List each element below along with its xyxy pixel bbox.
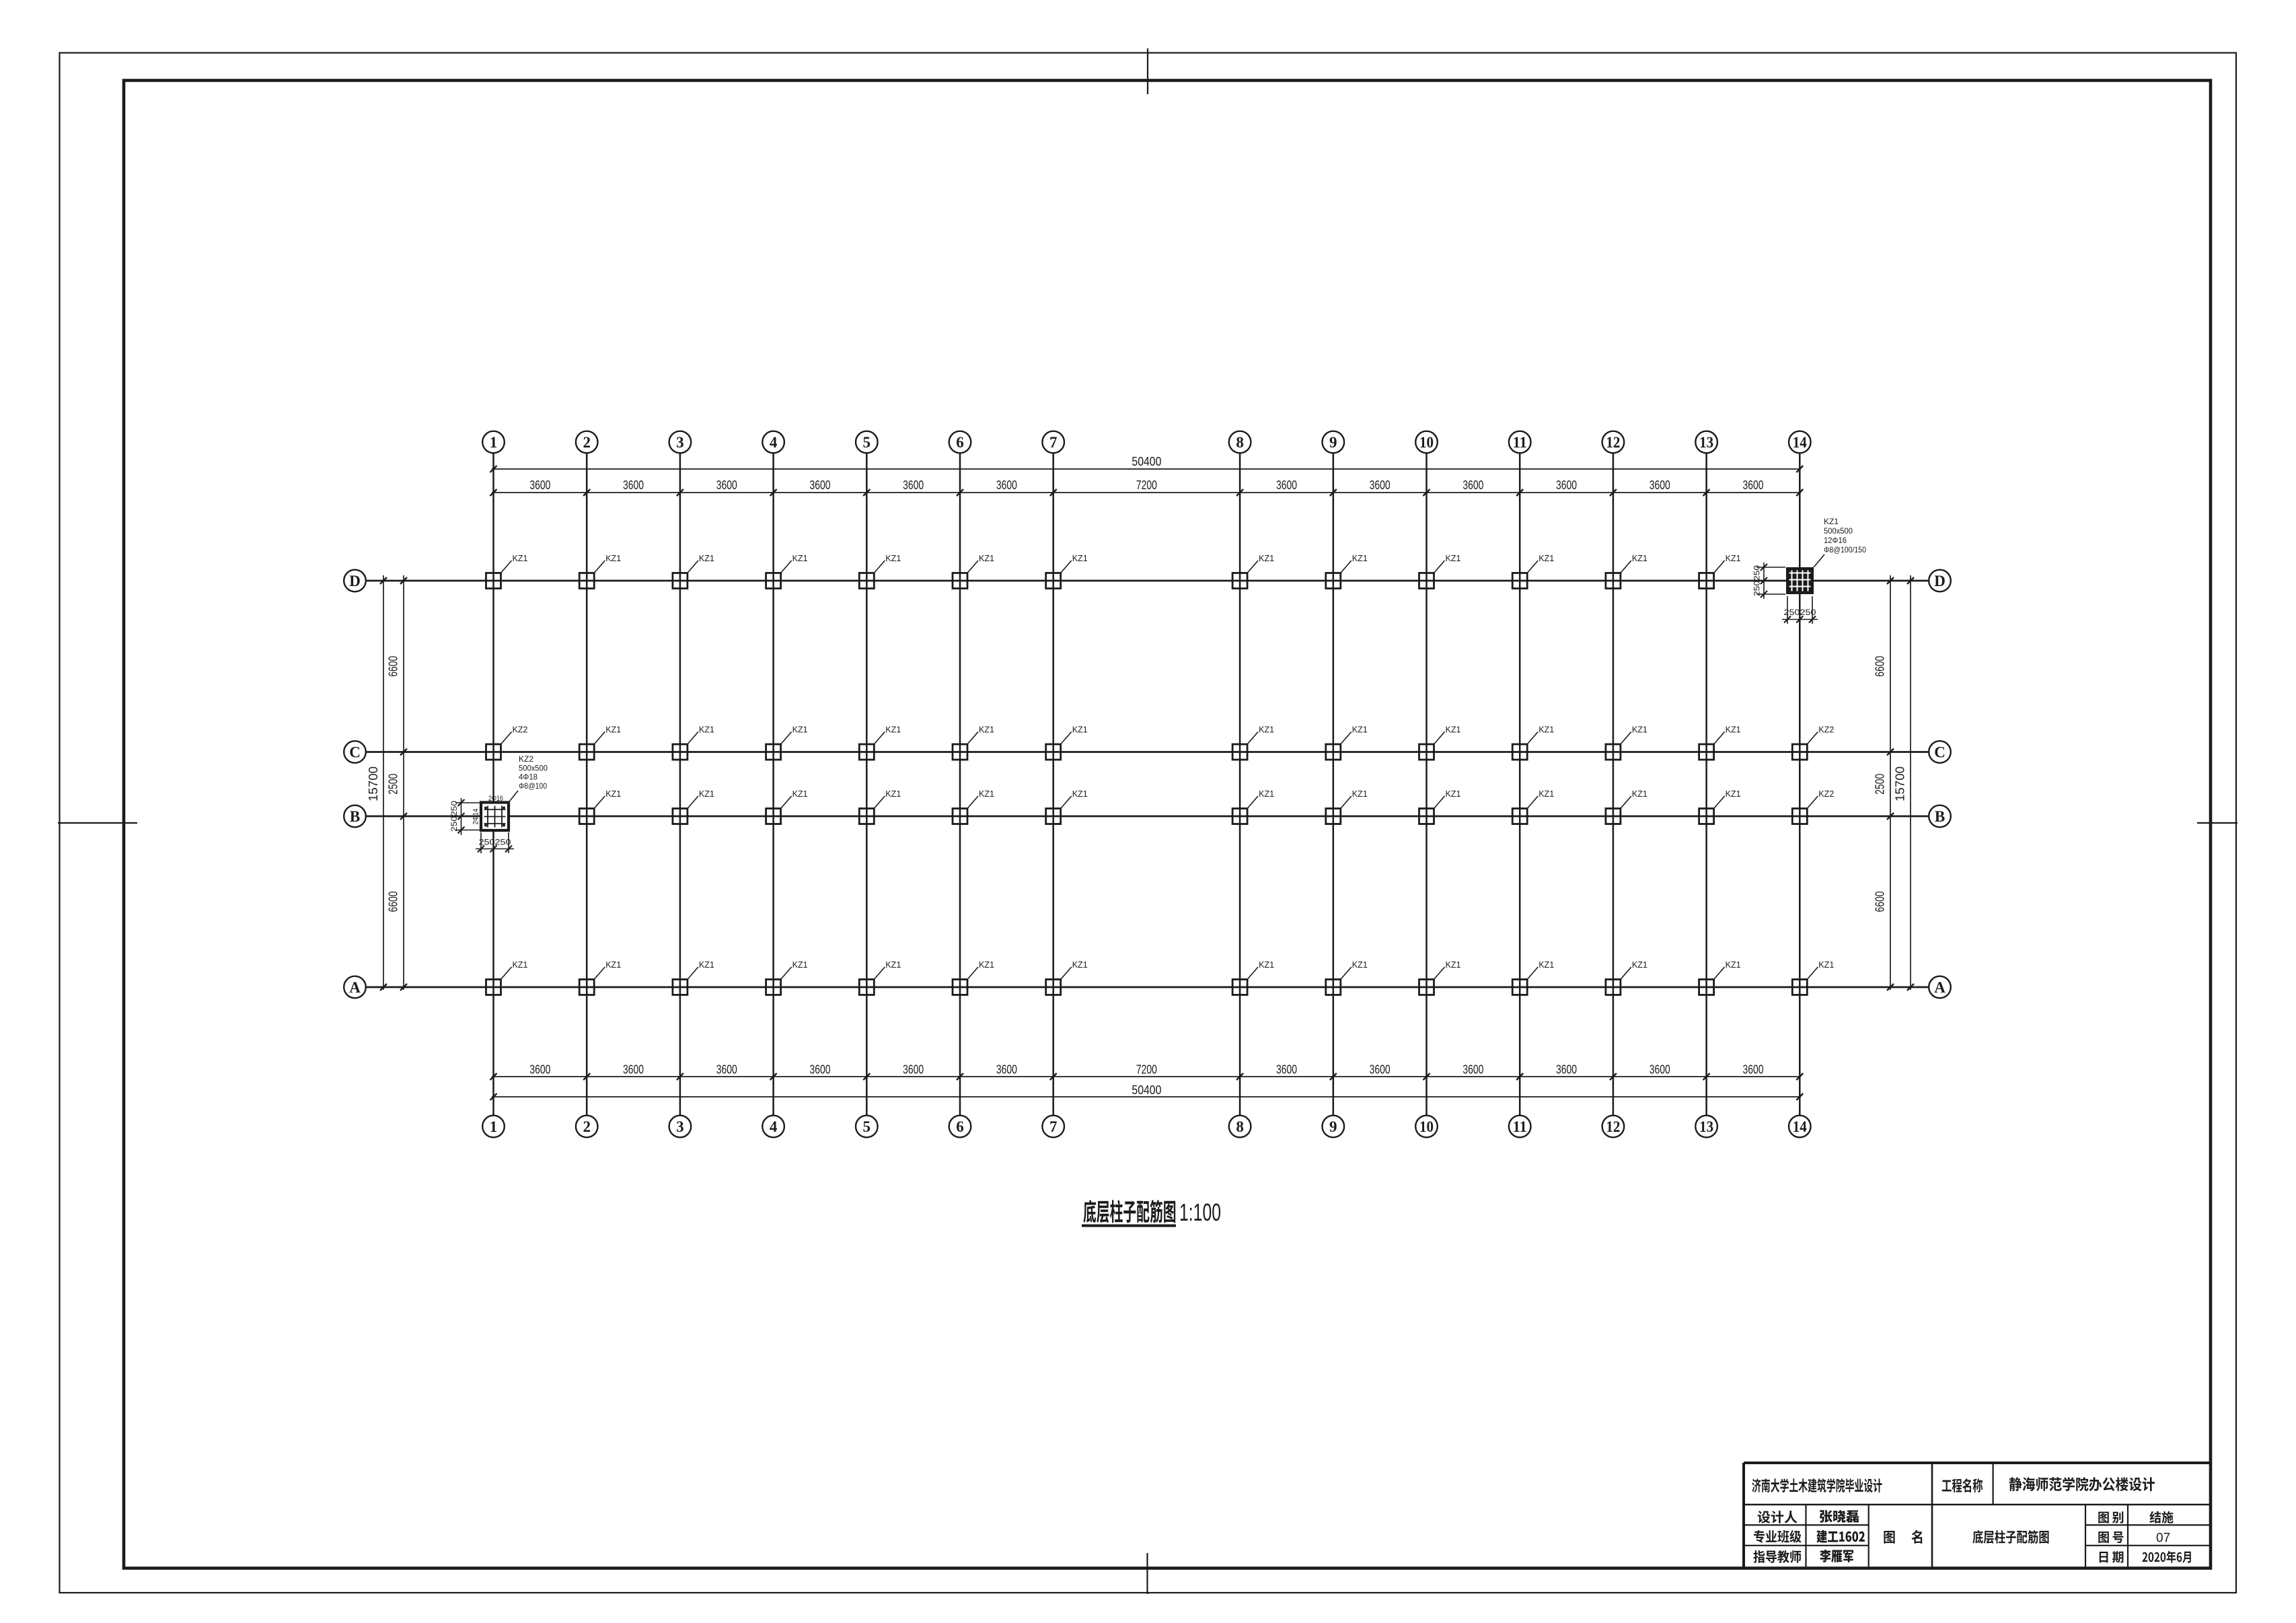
svg-text:KZ1: KZ1: [1352, 725, 1368, 735]
svg-text:250250: 250250: [449, 801, 459, 832]
svg-text:3600: 3600: [1650, 1063, 1670, 1077]
svg-text:KZ1: KZ1: [1072, 553, 1088, 563]
svg-text:KZ1: KZ1: [979, 960, 994, 970]
svg-text:50400: 50400: [1132, 1083, 1161, 1097]
svg-text:KZ1: KZ1: [1446, 553, 1461, 563]
svg-text:KZ1: KZ1: [1259, 553, 1274, 563]
svg-text:6600: 6600: [1874, 892, 1887, 912]
svg-text:3600: 3600: [1370, 1063, 1391, 1077]
svg-text:KZ1: KZ1: [979, 725, 994, 735]
svg-text:KZ1: KZ1: [605, 725, 621, 735]
svg-text:3600: 3600: [1742, 478, 1763, 492]
svg-text:3600: 3600: [529, 478, 550, 492]
svg-text:KZ1: KZ1: [1726, 960, 1741, 970]
svg-text:KZ1: KZ1: [1259, 960, 1274, 970]
svg-text:KZ1: KZ1: [1539, 553, 1554, 563]
svg-text:B: B: [350, 808, 360, 825]
svg-text:KZ1: KZ1: [979, 789, 994, 799]
svg-text:12Φ16: 12Φ16: [1824, 536, 1847, 545]
svg-text:KZ1: KZ1: [1352, 789, 1368, 799]
svg-text:D: D: [349, 573, 361, 589]
svg-text:7: 7: [1049, 1118, 1058, 1135]
svg-text:2: 2: [583, 1118, 591, 1135]
svg-text:7200: 7200: [1136, 1063, 1157, 1077]
svg-text:KZ2: KZ2: [513, 725, 528, 735]
svg-text:3600: 3600: [903, 478, 924, 492]
svg-text:KZ1: KZ1: [1539, 725, 1554, 735]
svg-text:3600: 3600: [1370, 478, 1391, 492]
svg-text:10: 10: [1419, 1118, 1434, 1135]
svg-text:KZ1: KZ1: [792, 789, 808, 799]
svg-text:A: A: [349, 979, 361, 996]
svg-text:15700: 15700: [1894, 766, 1907, 801]
svg-text:3600: 3600: [996, 478, 1017, 492]
svg-text:KZ1: KZ1: [513, 960, 528, 970]
svg-text:2Φ14: 2Φ14: [472, 809, 480, 825]
svg-text:KZ2: KZ2: [519, 754, 533, 764]
svg-text:9: 9: [1329, 1118, 1337, 1135]
svg-text:KZ1: KZ1: [1632, 960, 1647, 970]
svg-text:3600: 3600: [1556, 478, 1577, 492]
svg-text:KZ1: KZ1: [699, 789, 714, 799]
svg-text:500x500: 500x500: [1824, 526, 1853, 536]
svg-text:250250: 250250: [1752, 565, 1762, 596]
svg-text:8: 8: [1236, 1118, 1244, 1135]
svg-text:KZ1: KZ1: [1259, 789, 1274, 799]
svg-text:KZ1: KZ1: [1072, 960, 1088, 970]
svg-text:KZ1: KZ1: [1259, 725, 1274, 735]
svg-text:KZ1: KZ1: [1446, 725, 1461, 735]
svg-text:KZ1: KZ1: [1539, 789, 1554, 799]
svg-text:KZ1: KZ1: [513, 553, 528, 563]
svg-text:KZ1: KZ1: [1818, 960, 1834, 970]
svg-text:KZ2: KZ2: [1818, 789, 1834, 799]
svg-text:3600: 3600: [623, 478, 644, 492]
svg-text:3600: 3600: [996, 1063, 1017, 1077]
svg-text:KZ1: KZ1: [1072, 725, 1088, 735]
svg-text:KZ1: KZ1: [605, 789, 621, 799]
svg-text:KZ1: KZ1: [1824, 517, 1839, 526]
svg-text:12: 12: [1606, 434, 1620, 451]
svg-text:2Φ16: 2Φ16: [488, 795, 503, 803]
svg-text:3600: 3600: [809, 478, 830, 492]
svg-text:D: D: [1934, 573, 1946, 589]
svg-text:6: 6: [956, 434, 964, 451]
svg-text:3600: 3600: [1556, 1063, 1577, 1077]
svg-text:KZ1: KZ1: [792, 725, 808, 735]
svg-text:10: 10: [1419, 434, 1434, 451]
svg-text:7200: 7200: [1136, 478, 1157, 492]
svg-text:KZ1: KZ1: [979, 553, 994, 563]
svg-text:3600: 3600: [1462, 478, 1483, 492]
svg-text:6600: 6600: [387, 892, 400, 912]
svg-text:KZ1: KZ1: [885, 960, 901, 970]
svg-text:6: 6: [956, 1118, 964, 1135]
svg-text:KZ1: KZ1: [1632, 725, 1647, 735]
svg-text:250250: 250250: [479, 838, 511, 847]
svg-text:3600: 3600: [1650, 478, 1670, 492]
svg-text:3: 3: [676, 434, 684, 451]
svg-text:1: 1: [490, 434, 498, 451]
svg-text:14: 14: [1793, 1118, 1807, 1135]
svg-text:50400: 50400: [1132, 455, 1161, 468]
svg-text:13: 13: [1699, 1118, 1713, 1135]
svg-text:2500: 2500: [387, 774, 400, 795]
svg-text:KZ2: KZ2: [1818, 725, 1834, 735]
svg-text:B: B: [1935, 808, 1945, 825]
svg-text:5: 5: [863, 434, 871, 451]
svg-text:3600: 3600: [716, 1063, 737, 1077]
svg-text:KZ1: KZ1: [699, 960, 714, 970]
svg-text:4: 4: [770, 1118, 778, 1135]
svg-text:1:100: 1:100: [1179, 1198, 1221, 1226]
svg-text:500x500: 500x500: [519, 763, 548, 772]
svg-text:KZ1: KZ1: [699, 725, 714, 735]
svg-text:KZ1: KZ1: [885, 553, 901, 563]
svg-text:4Φ18: 4Φ18: [519, 772, 538, 782]
svg-text:6600: 6600: [1874, 656, 1887, 677]
svg-text:07: 07: [2156, 1531, 2170, 1546]
svg-text:2500: 2500: [1874, 774, 1887, 795]
svg-text:7: 7: [1049, 434, 1058, 451]
svg-text:9: 9: [1329, 434, 1337, 451]
svg-text:250250: 250250: [1784, 608, 1816, 617]
svg-text:15700: 15700: [367, 766, 380, 801]
svg-text:Φ8@100/150: Φ8@100/150: [1824, 545, 1866, 554]
svg-text:13: 13: [1699, 434, 1713, 451]
svg-text:3600: 3600: [1742, 1063, 1763, 1077]
svg-text:C: C: [349, 744, 361, 761]
svg-text:3: 3: [676, 1118, 684, 1135]
svg-text:3600: 3600: [809, 1063, 830, 1077]
svg-text:3600: 3600: [1276, 478, 1297, 492]
svg-text:11: 11: [1513, 434, 1527, 451]
svg-text:2: 2: [583, 434, 591, 451]
svg-text:11: 11: [1513, 1118, 1527, 1135]
svg-text:KZ1: KZ1: [1446, 789, 1461, 799]
svg-text:KZ1: KZ1: [1072, 789, 1088, 799]
svg-text:Φ8@100: Φ8@100: [519, 781, 547, 791]
svg-text:3600: 3600: [1276, 1063, 1297, 1077]
svg-text:KZ1: KZ1: [1632, 553, 1647, 563]
svg-text:4: 4: [770, 434, 778, 451]
svg-text:3600: 3600: [903, 1063, 924, 1077]
svg-text:KZ1: KZ1: [885, 725, 901, 735]
svg-text:3600: 3600: [1462, 1063, 1483, 1077]
svg-text:6600: 6600: [387, 656, 400, 677]
svg-text:KZ1: KZ1: [699, 553, 714, 563]
svg-text:KZ1: KZ1: [1446, 960, 1461, 970]
svg-text:KZ1: KZ1: [1726, 725, 1741, 735]
svg-text:KZ1: KZ1: [792, 553, 808, 563]
svg-text:KZ1: KZ1: [1726, 553, 1741, 563]
svg-text:14: 14: [1793, 434, 1807, 451]
svg-text:KZ1: KZ1: [605, 553, 621, 563]
svg-text:5: 5: [863, 1118, 871, 1135]
svg-text:KZ1: KZ1: [1352, 553, 1368, 563]
svg-text:3600: 3600: [716, 478, 737, 492]
svg-text:1: 1: [490, 1118, 498, 1135]
svg-text:KZ1: KZ1: [792, 960, 808, 970]
svg-text:KZ1: KZ1: [1539, 960, 1554, 970]
svg-text:C: C: [1934, 744, 1946, 761]
svg-text:3600: 3600: [529, 1063, 550, 1077]
svg-text:12: 12: [1606, 1118, 1620, 1135]
svg-text:KZ1: KZ1: [1632, 789, 1647, 799]
svg-text:KZ1: KZ1: [1726, 789, 1741, 799]
svg-text:KZ1: KZ1: [1352, 960, 1368, 970]
svg-text:3600: 3600: [623, 1063, 644, 1077]
svg-text:8: 8: [1236, 434, 1244, 451]
svg-text:KZ1: KZ1: [605, 960, 621, 970]
svg-text:A: A: [1934, 979, 1946, 996]
svg-text:KZ1: KZ1: [885, 789, 901, 799]
